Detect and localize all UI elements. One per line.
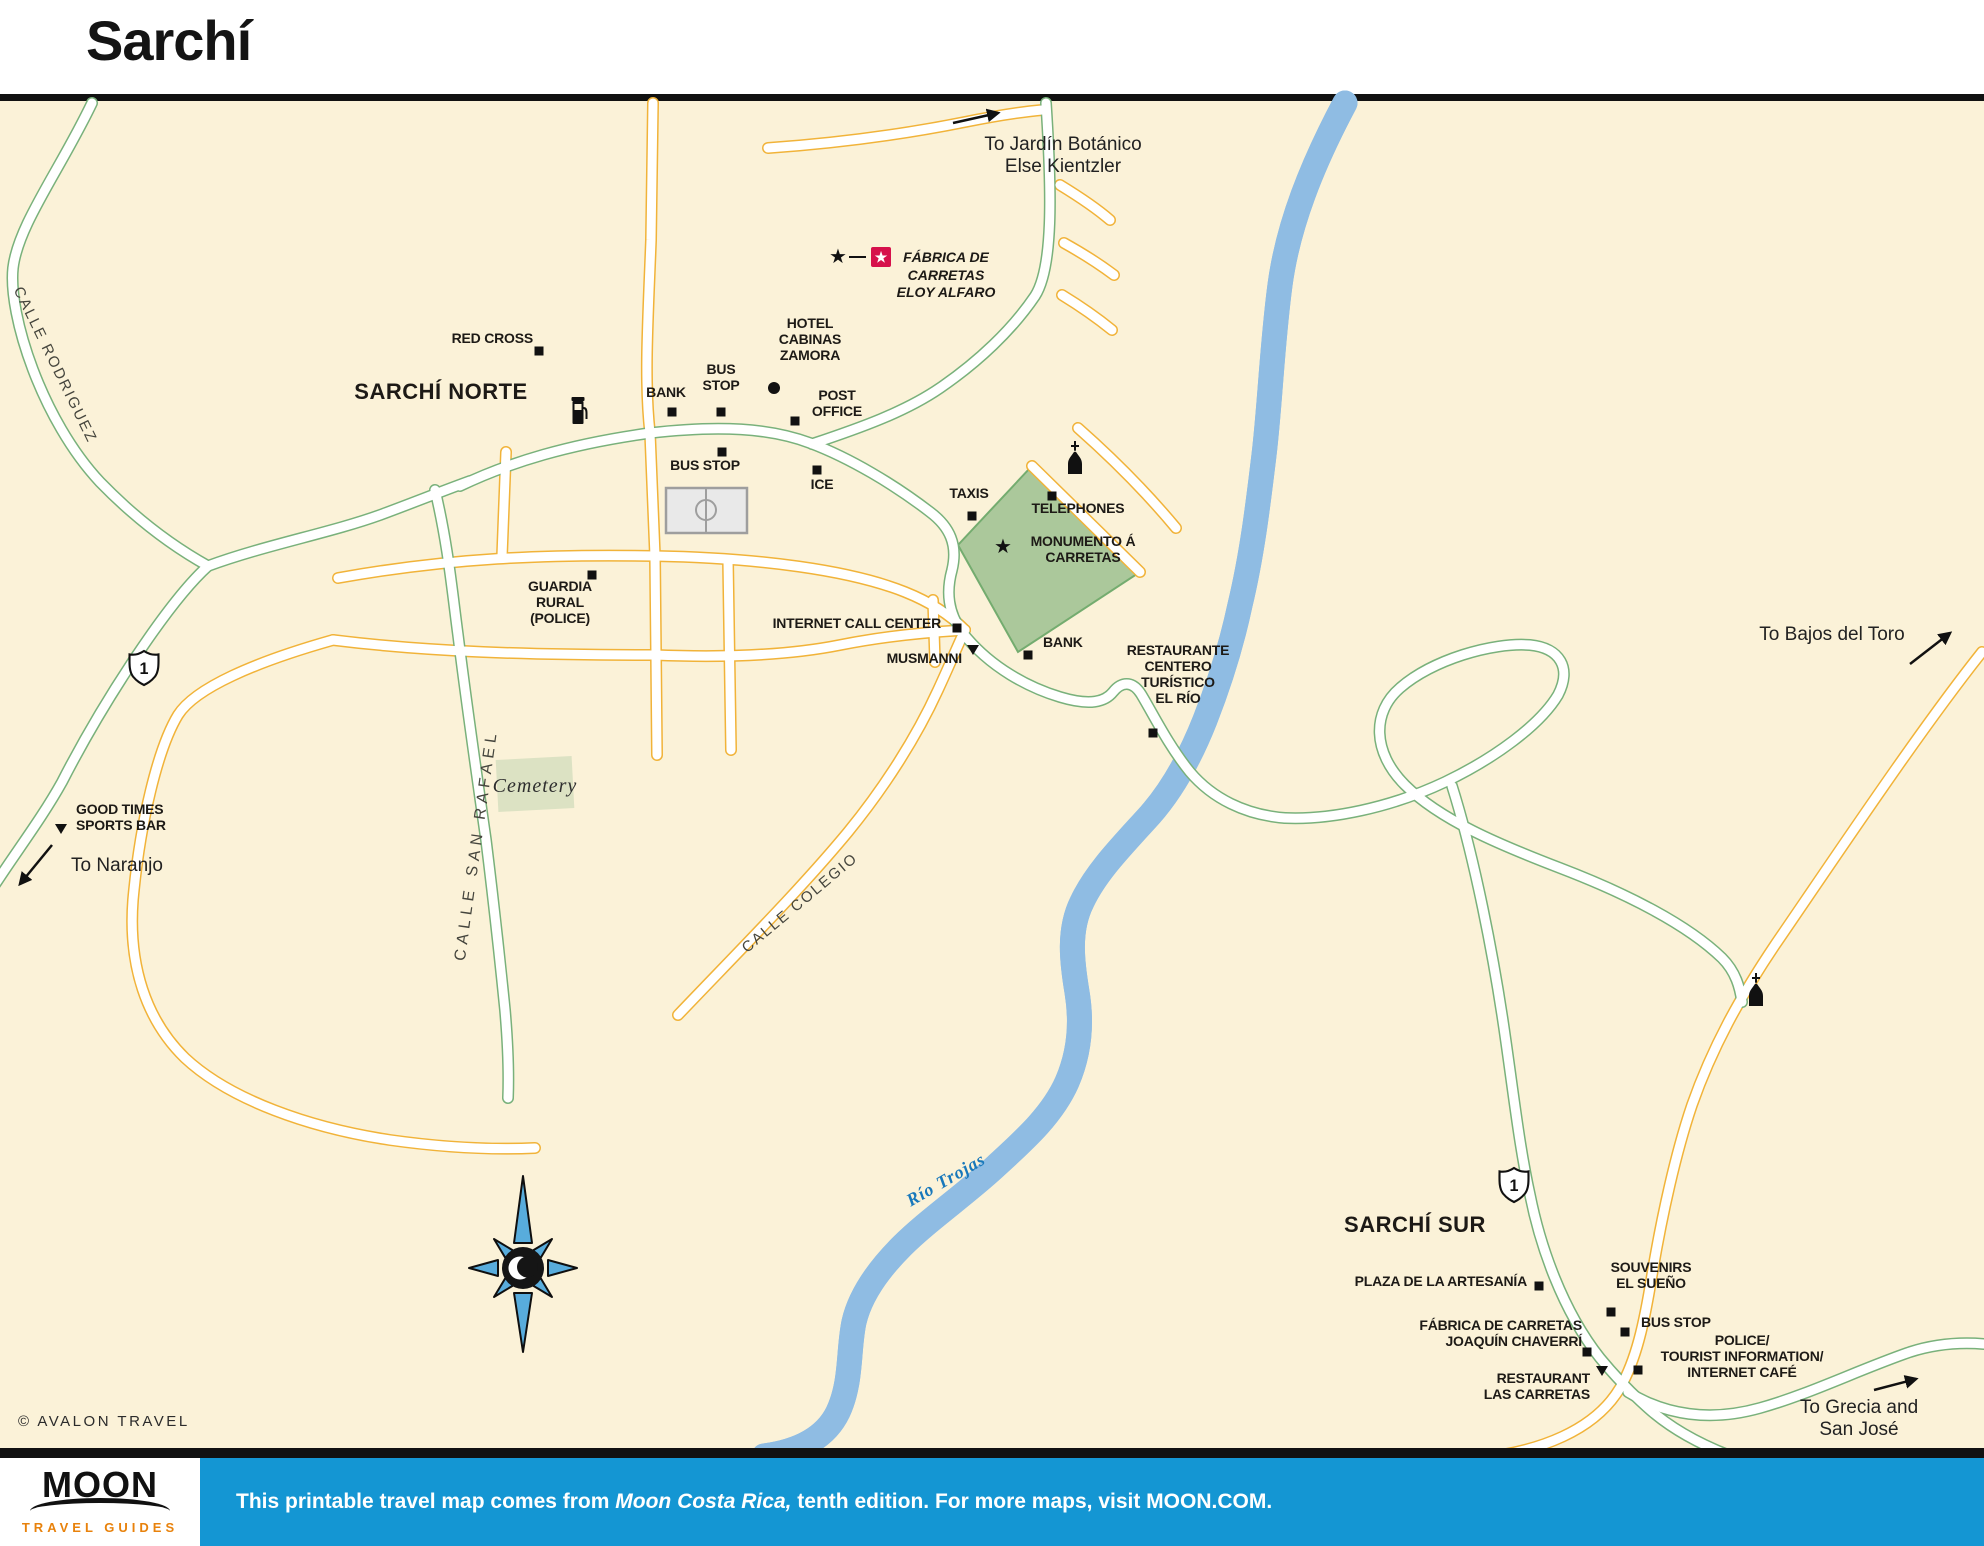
hotel-cabinas-zamora-marker [768, 382, 780, 394]
svg-text:1: 1 [140, 660, 149, 678]
las-carretas-marker [1596, 1366, 1608, 1376]
label-taxis: TAXIS [949, 486, 988, 502]
label-to-jardin: To Jardín BotánicoElse Kientzler [984, 134, 1141, 178]
telephones-marker [1048, 492, 1057, 501]
good-times-marker [55, 824, 67, 834]
gas-station-icon [572, 397, 589, 425]
label-good-times-sports-bar: GOOD TIMESSPORTS BAR [76, 802, 166, 834]
souvenirs-marker [1607, 1308, 1616, 1317]
label-calle-colegio: CALLE COLEGIO [739, 850, 862, 957]
bus-stop-3-marker [1621, 1328, 1630, 1337]
police-tourist-marker [1634, 1366, 1643, 1375]
moon-logo: MOON TRAVEL GUIDES [0, 1458, 200, 1546]
map-overlay: To Jardín BotánicoElse KientzlerFÁBRICA … [0, 0, 1984, 1546]
ice-marker [813, 466, 822, 475]
label-bank-2: BANK [1043, 635, 1083, 651]
label-musmanni: MUSMANNI [887, 651, 962, 667]
label-copyright: © AVALON TRAVEL [18, 1413, 190, 1430]
label-calle-rodriguez: CALLE RODRIGUEZ [10, 284, 101, 446]
label-internet-call-center: INTERNET CALL CENTER [773, 616, 941, 632]
red-cross-marker [535, 347, 544, 356]
bank-1-marker [668, 408, 677, 417]
highway-shield-1-north: 1 [127, 649, 161, 687]
moon-logo-subtitle: TRAVEL GUIDES [22, 1520, 178, 1535]
label-bus-stop-2: BUS STOP [670, 458, 740, 474]
bank-2-marker [1024, 651, 1033, 660]
label-fabrica-joaquin-chaverri: FÁBRICA DE CARRETASJOAQUÍN CHAVERRÍ [1419, 1318, 1582, 1350]
post-office-marker [791, 417, 800, 426]
label-hotel-cabinas-zamora: HOTELCABINASZAMORA [779, 316, 841, 364]
svg-text:1: 1 [1510, 1177, 1519, 1195]
bus-stop-2-marker [718, 448, 727, 457]
label-red-cross: RED CROSS [452, 331, 533, 347]
label-telephones: TELEPHONES [1032, 501, 1125, 517]
label-guardia-rural: GUARDIARURAL(POLICE) [528, 579, 592, 627]
restaurante-el-rio-marker [1149, 729, 1158, 738]
footer-text-prefix: This printable travel map comes from [236, 1490, 615, 1513]
label-police-tourist-info: POLICE/TOURIST INFORMATION/INTERNET CAFÉ [1661, 1333, 1824, 1381]
footer-text: This printable travel map comes from Moo… [200, 1490, 1272, 1514]
label-bus-stop-3: BUS STOP [1641, 1315, 1711, 1331]
label-souvenirs-el-sueno: SOUVENIRSEL SUEÑO [1611, 1260, 1692, 1292]
monumento-star: ★ [994, 537, 1012, 557]
label-restaurant-las-carretas: RESTAURANTLAS CARRETAS [1484, 1371, 1590, 1403]
fabrica-joaquin-marker [1583, 1348, 1592, 1357]
label-to-grecia-san-jose: To Grecia andSan José [1800, 1397, 1918, 1441]
bus-stop-1-marker [717, 408, 726, 417]
footer-text-book-title: Moon Costa Rica, [615, 1490, 791, 1513]
label-to-naranjo: To Naranjo [71, 855, 163, 877]
label-post-office: POSTOFFICE [812, 388, 862, 420]
label-plaza-de-la-artesania: PLAZA DE LA ARTESANÍA [1355, 1274, 1527, 1290]
label-bus-stop-1: BUSSTOP [702, 362, 739, 394]
label-to-bajos-del-toro: To Bajos del Toro [1759, 624, 1904, 646]
church-icon-1 [1065, 441, 1085, 475]
label-sarchi-sur: SARCHÍ SUR [1344, 1212, 1486, 1238]
fabrica-eloy-star: ★ [829, 247, 847, 267]
taxis-marker [968, 512, 977, 521]
map-canvas: To Jardín BotánicoElse KientzlerFÁBRICA … [0, 101, 1984, 1448]
church-icon-2 [1746, 973, 1766, 1007]
label-bank-1: BANK [646, 385, 686, 401]
label-cemetery: Cemetery [493, 775, 578, 798]
plaza-artesania-marker [1535, 1282, 1544, 1291]
map-page: Sarchí [0, 0, 1984, 1546]
label-restaurante-el-rio: RESTAURANTECENTEROTURÍSTICOEL RÍO [1127, 643, 1230, 707]
label-calle-san-rafael: CALLE SAN RAFAEL [452, 728, 502, 962]
footer-banner: This printable travel map comes from Moo… [200, 1458, 1984, 1546]
label-fabrica-eloy-alfaro: FÁBRICA DECARRETASELOY ALFARO [897, 249, 996, 302]
guardia-rural-marker [588, 571, 597, 580]
footer-text-suffix: tenth edition. For more maps, visit MOON… [791, 1490, 1272, 1513]
moon-logo-wordmark: MOON [42, 1469, 158, 1501]
label-ice: ICE [811, 477, 834, 493]
label-rio-trojas: Río Trojas [903, 1149, 990, 1211]
musmanni-marker [967, 645, 979, 655]
footer-rule [0, 1448, 1984, 1458]
highway-shield-1-south: 1 [1497, 1166, 1531, 1204]
label-sarchi-norte: SARCHÍ NORTE [354, 379, 527, 405]
footer: MOON TRAVEL GUIDES This printable travel… [0, 1458, 1984, 1546]
fabrica-eloy-sight-box: ★ [871, 247, 891, 267]
internet-call-center-marker [953, 624, 962, 633]
label-monumento-a-carretas: MONUMENTO ÁCARRETAS [1031, 534, 1136, 566]
